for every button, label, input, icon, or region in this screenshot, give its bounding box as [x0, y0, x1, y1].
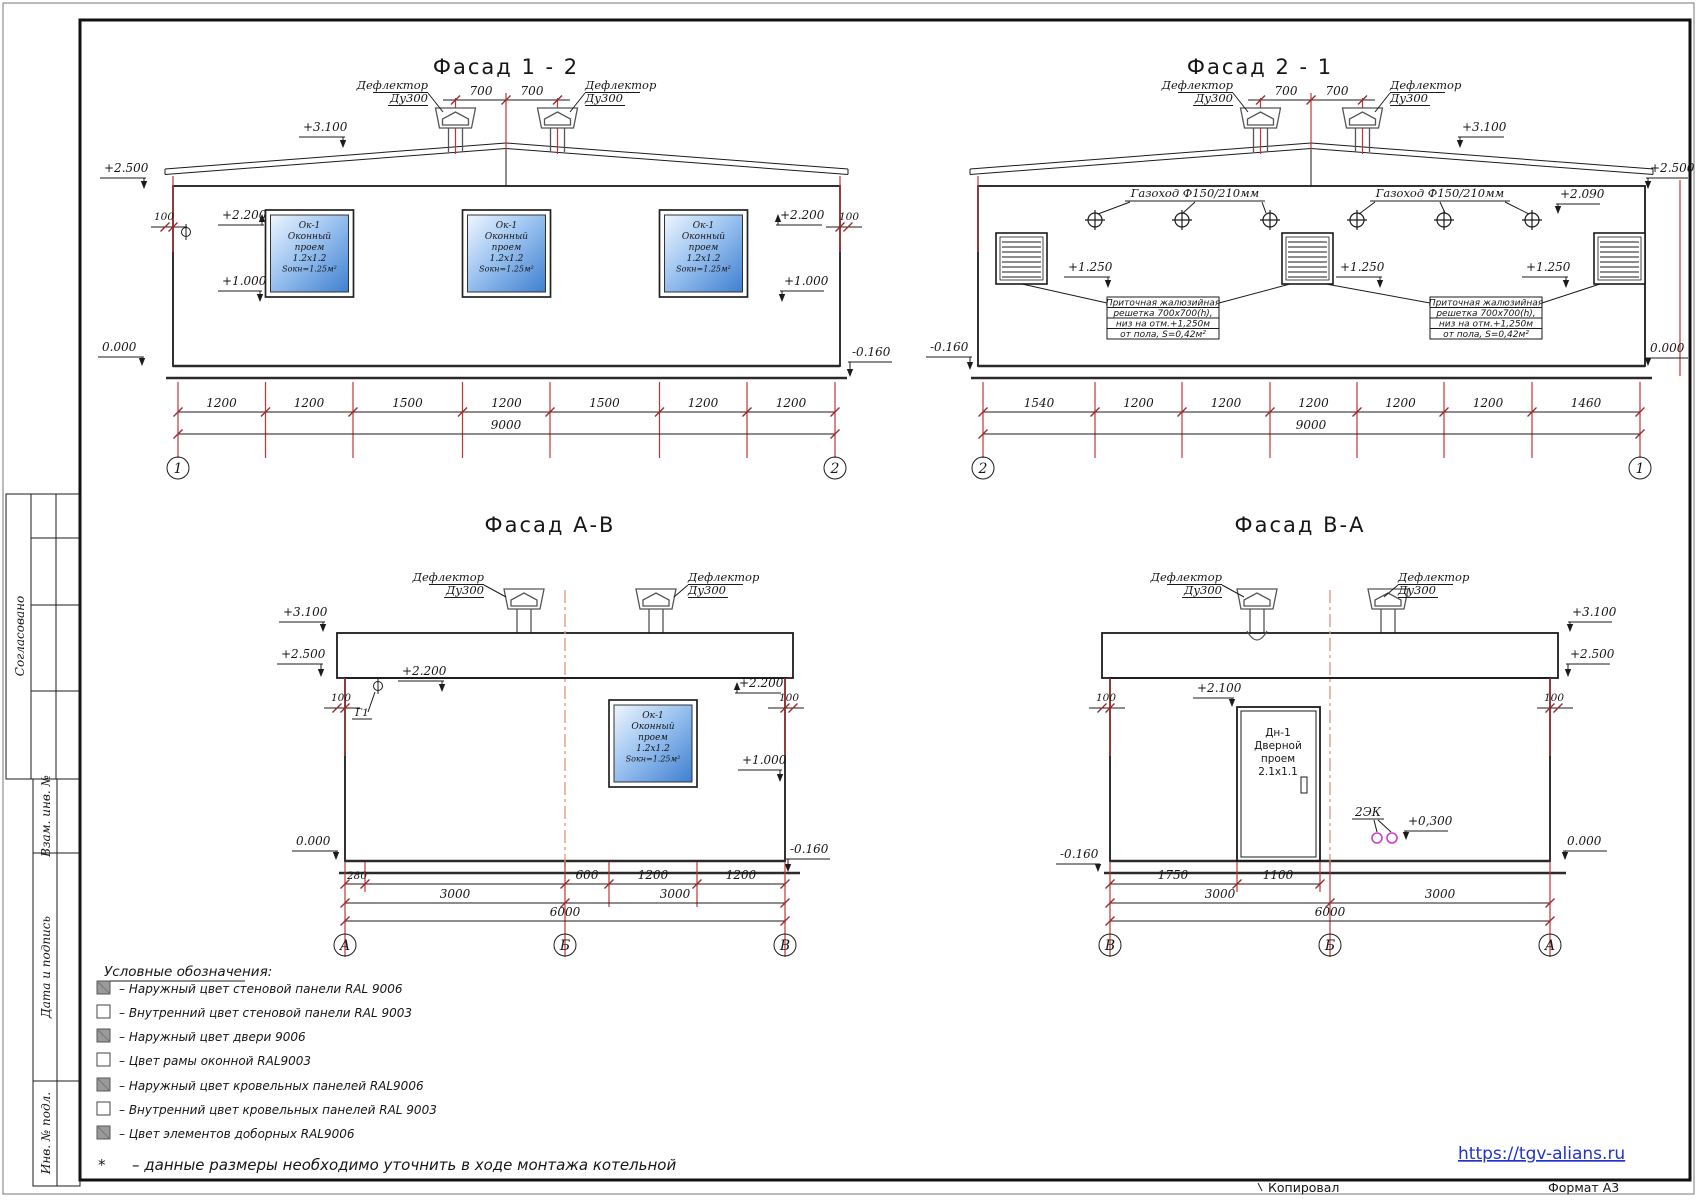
dim-value: 1200 [206, 396, 237, 410]
svg-text:– Внутренний цвет стеновой пан: – Внутренний цвет стеновой панели RAL 90… [119, 1006, 412, 1020]
svg-text:Ду300: Ду300 [1397, 583, 1436, 597]
footnote-text: – данные размеры необходимо уточнить в х… [132, 1156, 676, 1174]
svg-text:Дефлектор: Дефлектор [356, 78, 429, 92]
dim-total: 9000 [1296, 418, 1327, 432]
format-label: Формат А3 [1548, 1180, 1619, 1195]
dim-value: 280 [346, 870, 367, 882]
dim-100: 100 [826, 211, 862, 232]
svg-text:Ок-1: Ок-1 [693, 221, 715, 231]
deflector-label: Дефлектор Ду300 [412, 570, 506, 598]
elevation-mark: +2.200 [775, 208, 825, 225]
svg-text:+2.500: +2.500 [1650, 161, 1695, 175]
svg-text:низ на отм.+1,250м: низ на отм.+1,250м [1439, 320, 1533, 330]
svg-text:1.2х1.2: 1.2х1.2 [687, 254, 721, 264]
cable-entry-2ek: 2ЭК [1352, 805, 1397, 843]
svg-text:Дефлектор: Дефлектор [1150, 570, 1223, 584]
elevation-mark: -0.160 [926, 340, 973, 370]
dim-value: 1100 [1263, 868, 1294, 882]
legend: Условные обозначения: – Наружный цвет ст… [97, 964, 676, 1174]
elevation-mark: -0.160 [785, 842, 830, 872]
svg-text:0.000: 0.000 [102, 340, 137, 354]
svg-text:100: 100 [331, 692, 351, 704]
swatch-white [97, 1053, 110, 1066]
svg-text:-0.160: -0.160 [1060, 847, 1099, 861]
svg-text:Оконный: Оконный [682, 232, 725, 242]
svg-text:+0,300: +0,300 [1408, 814, 1453, 828]
svg-text:Sокн=1.25м²: Sокн=1.25м² [676, 265, 731, 274]
svg-text:0.000: 0.000 [1650, 341, 1685, 355]
stamp-vzam-label: Взам. инв. № [39, 775, 53, 858]
agreed-label: Согласовано [13, 596, 27, 676]
svg-text:2: 2 [830, 461, 840, 477]
svg-text:+1.000: +1.000 [742, 753, 787, 767]
svg-text:+3.100: +3.100 [1462, 120, 1507, 134]
louver-grille [1594, 233, 1645, 284]
legend-item: – Наружный цвет кровельных панелей RAL90… [97, 1078, 424, 1093]
svg-text:+1.250: +1.250 [1068, 260, 1113, 274]
svg-text:Дефлектор: Дефлектор [1161, 78, 1234, 92]
dimension-rows: 1200 1200 1500 1200 1500 1200 1200 9000 [174, 382, 840, 458]
svg-text:+1.000: +1.000 [222, 274, 267, 288]
dim-700: 700 [470, 84, 493, 98]
svg-text:низ на отм.+1,250м: низ на отм.+1,250м [1116, 320, 1210, 330]
dim-value: 1200 [294, 396, 325, 410]
deflector-label: Дефлектор Ду300 [1161, 78, 1248, 112]
dim-value: 1540 [1024, 396, 1055, 410]
elevation-mark: +1.000 [218, 274, 267, 302]
svg-text:Дефлектор: Дефлектор [1389, 78, 1462, 92]
drawing-canvas: Согласовано Взам. инв. № Дата и подпись … [0, 0, 1697, 1200]
svg-text:Б: Б [1324, 938, 1335, 954]
title-block-sidebar: Согласовано Взам. инв. № Дата и подпись … [6, 494, 80, 1186]
facade-a-b-title: Фасад А-В [485, 513, 616, 537]
facade-1-2: Фасад 1 - 2 700 700 Дефлектор Ду300 Дефл… [98, 55, 892, 479]
elevation-mark: +2.200 [218, 208, 267, 225]
gazohod-label: Газоход Ф150/210мм [1098, 186, 1266, 214]
svg-text:– Наружный цвет двери 9006: – Наружный цвет двери 9006 [119, 1030, 306, 1044]
dim-value: 3000 [660, 887, 691, 901]
dim-value: 1460 [1571, 396, 1602, 410]
dim-100: 100 [1089, 692, 1125, 713]
svg-text:Ду300: Ду300 [389, 91, 428, 105]
deflector-icon [636, 589, 676, 633]
dim-total: 9000 [491, 418, 522, 432]
gas-vent-icon [1260, 210, 1280, 230]
elevation-mark: +1.000 [738, 753, 787, 782]
gas-vent-icon [1347, 210, 1367, 230]
dim-700: 700 [1326, 84, 1349, 98]
facade-a-b: Фасад А-В Дефлектор Ду300 Дефлектор Ду30… [277, 513, 830, 957]
svg-text:+2.100: +2.100 [1197, 681, 1242, 695]
svg-text:+2.500: +2.500 [104, 161, 149, 175]
svg-text:– Наружный цвет кровельных пан: – Наружный цвет кровельных панелей RAL90… [119, 1079, 424, 1093]
louver-grille [996, 233, 1047, 284]
svg-text:В: В [1104, 938, 1115, 954]
svg-text:Дефлектор: Дефлектор [1397, 570, 1470, 584]
svg-text:Дефлектор: Дефлектор [584, 78, 657, 92]
svg-text:+2.500: +2.500 [1570, 647, 1615, 661]
elevation-mark: +2.090 [1555, 187, 1605, 214]
svg-text:+2.500: +2.500 [281, 647, 326, 661]
stamp-date-label: Дата и подпись [39, 916, 53, 1019]
legend-item: – Наружный цвет двери 9006 [97, 1029, 306, 1044]
dim-100: 100 [768, 692, 804, 713]
facade-1-2-title: Фасад 1 - 2 [433, 55, 579, 79]
elevation-mark: +3.100 [279, 605, 328, 632]
dim-total: 6000 [1315, 905, 1346, 919]
elevation-mark: +2.500 [1565, 647, 1615, 677]
elevation-mark: +3.100 [299, 120, 348, 148]
elevation-mark: +2.200 [734, 676, 784, 693]
elevation-mark: 0.000 [98, 340, 145, 366]
dim-value: 1200 [1211, 396, 1242, 410]
site-link[interactable]: https://tgv-alians.ru [1458, 1144, 1625, 1164]
svg-text:Ду300: Ду300 [1194, 91, 1233, 105]
deflector-label: Дефлектор Ду300 [674, 570, 760, 598]
svg-text:Б: Б [559, 938, 570, 954]
stamp-inv-label: Инв. № подл. [39, 1092, 53, 1175]
elevation-mark: +1.250 [1336, 260, 1385, 288]
svg-text:+1.250: +1.250 [1526, 260, 1571, 274]
svg-text:1: 1 [174, 461, 183, 477]
svg-text:Дверной: Дверной [1254, 740, 1302, 752]
sheet-footer: https://tgv-alians.ru Копировал Формат А… [1258, 1144, 1625, 1195]
dim-value: 1200 [638, 868, 669, 882]
louver-grille [1282, 233, 1333, 284]
swatch-white [97, 1005, 110, 1018]
gas-vent-icon [1434, 210, 1454, 230]
svg-text:Ду300: Ду300 [687, 583, 726, 597]
elevation-mark: -0.160 [847, 345, 892, 377]
svg-text:Дн-1: Дн-1 [1265, 727, 1291, 739]
svg-text:Ок-1: Ок-1 [642, 711, 664, 721]
svg-text:2.1х1.1: 2.1х1.1 [1258, 766, 1298, 778]
deflector-label: Дефлектор Ду300 [356, 78, 443, 112]
svg-text:Ду300: Ду300 [1389, 91, 1428, 105]
svg-text:100: 100 [154, 211, 174, 223]
svg-text:Sокн=1.25м²: Sокн=1.25м² [626, 755, 681, 764]
svg-text:+2.200: +2.200 [739, 676, 784, 690]
elevation-mark: 0.000 [1645, 341, 1688, 366]
svg-text:0.000: 0.000 [296, 834, 331, 848]
svg-text:Ок-1: Ок-1 [496, 221, 518, 231]
legend-item: – Цвет элементов доборных RAL9006 [97, 1126, 355, 1141]
svg-text:1.2х1.2: 1.2х1.2 [636, 744, 670, 754]
dim-value: 1200 [776, 396, 807, 410]
dim-700: 700 [1275, 84, 1298, 98]
elevation-mark: +1.250 [1064, 260, 1113, 288]
deflector-icon [1237, 589, 1277, 633]
svg-text:100: 100 [1096, 692, 1116, 704]
dim-100: 100 [1537, 692, 1573, 713]
svg-text:Оконный: Оконный [288, 232, 331, 242]
svg-text:Ок-1: Ок-1 [299, 221, 321, 231]
svg-text:Ду300: Ду300 [584, 91, 623, 105]
dim-value: 3000 [440, 887, 471, 901]
elevation-mark: +2.500 [1645, 161, 1695, 189]
svg-text:Sокн=1.25м²: Sокн=1.25м² [282, 265, 337, 274]
svg-text:от пола, S=0,42м²: от пола, S=0,42м² [1120, 330, 1206, 340]
svg-text:Дефлектор: Дефлектор [412, 570, 485, 584]
elevation-mark: 0.000 [1562, 834, 1607, 860]
svg-text:+2.090: +2.090 [1560, 187, 1605, 201]
svg-text:А: А [1544, 938, 1556, 954]
drawing-sheet: Согласовано Взам. инв. № Дата и подпись … [0, 0, 1697, 1200]
elevation-mark: -0.160 [1056, 847, 1101, 872]
svg-text:Оконный: Оконный [485, 232, 528, 242]
svg-text:+2.200: +2.200 [780, 208, 825, 222]
dim-value: 3000 [1425, 887, 1456, 901]
svg-text:1: 1 [1636, 461, 1645, 477]
dim-value: 1200 [688, 396, 719, 410]
intake-grille-note: Приточная жалюзийная решетка 700х700(h),… [1326, 284, 1600, 340]
door-dn1: Дн-1 Дверной проем 2.1х1.1 [1237, 707, 1320, 861]
elevation-mark: +2.100 [1193, 681, 1242, 707]
svg-text:2ЭК: 2ЭК [1354, 805, 1382, 819]
svg-text:решетка 700х700(h),: решетка 700х700(h), [1112, 309, 1212, 319]
svg-text:0.000: 0.000 [1567, 834, 1602, 848]
dim-value: 1200 [1123, 396, 1154, 410]
svg-text:В: В [779, 938, 790, 954]
svg-text:Приточная жалюзийная: Приточная жалюзийная [1106, 299, 1221, 309]
axis-marker: А Б В [334, 934, 796, 956]
facade-b-a-title: Фасад В-А [1235, 513, 1366, 537]
svg-text:100: 100 [1544, 692, 1564, 704]
elevation-mark: +0,300 [1403, 814, 1453, 840]
svg-text:-0.160: -0.160 [930, 340, 969, 354]
dim-value: 1500 [392, 396, 423, 410]
svg-text:100: 100 [839, 211, 859, 223]
dim-700: 700 [521, 84, 544, 98]
svg-text:проем: проем [689, 243, 719, 253]
svg-text:100: 100 [779, 692, 799, 704]
svg-text:проем: проем [638, 733, 668, 743]
svg-text:проем: проем [295, 243, 325, 253]
svg-text:Дефлектор: Дефлектор [687, 570, 760, 584]
svg-text:-0.160: -0.160 [852, 345, 891, 359]
svg-text:– Цвет рамы оконной RAL9003: – Цвет рамы оконной RAL9003 [119, 1054, 311, 1068]
svg-text:Газоход Ф150/210мм: Газоход Ф150/210мм [1130, 186, 1259, 200]
dim-value: 1200 [1298, 396, 1329, 410]
dim-value: 1200 [491, 396, 522, 410]
dim-value: 1200 [1473, 396, 1504, 410]
svg-text:1.2х1.2: 1.2х1.2 [293, 254, 327, 264]
svg-text:Ду300: Ду300 [1183, 583, 1222, 597]
svg-text:от пола, S=0,42м²: от пола, S=0,42м² [1443, 330, 1529, 340]
svg-text:– Цвет элементов доборных RAL9: – Цвет элементов доборных RAL9006 [119, 1127, 355, 1141]
door-handle [1301, 777, 1307, 793]
facade-2-1-title: Фасад 2 - 1 [1187, 55, 1333, 79]
svg-text:– Наружный цвет стеновой панел: – Наружный цвет стеновой панели RAL 9006 [119, 982, 403, 996]
svg-text:– Внутренний цвет кровельных п: – Внутренний цвет кровельных панелей RAL… [119, 1103, 437, 1117]
svg-text:+2.200: +2.200 [402, 664, 447, 678]
gas-inlet-g1: Г1 [352, 678, 383, 719]
swatch-white [97, 1102, 110, 1115]
elevation-mark: +3.100 [1567, 605, 1617, 632]
svg-text:решетка 700х700(h),: решетка 700х700(h), [1435, 309, 1535, 319]
gas-vent-icon [1522, 210, 1542, 230]
legend-item: – Внутренний цвет кровельных панелей RAL… [97, 1102, 437, 1117]
elevation-mark: 0.000 [292, 834, 339, 860]
legend-item: – Внутренний цвет стеновой панели RAL 90… [97, 1005, 412, 1020]
elevation-mark: +3.100 [1457, 120, 1507, 148]
svg-text:-0.160: -0.160 [790, 842, 829, 856]
dim-total: 6000 [550, 905, 581, 919]
facade-b-a: Фасад В-А Дефлектор Ду300 Дефлектор Ду30… [1056, 513, 1617, 957]
dim-value: 3000 [1205, 887, 1236, 901]
gazohod-label: Газоход Ф150/210мм [1359, 186, 1529, 214]
svg-text:+3.100: +3.100 [303, 120, 348, 134]
axis-marker: 2 1 [972, 457, 1651, 479]
axis-marker: В Б А [1099, 934, 1561, 956]
legend-title: Условные обозначения: [104, 964, 272, 980]
deflector-icon [504, 589, 544, 633]
svg-text:2: 2 [978, 461, 988, 477]
dim-value: 1200 [1385, 396, 1416, 410]
svg-text:1.2х1.2: 1.2х1.2 [490, 254, 524, 264]
elevation-mark: +1.000 [779, 274, 829, 302]
svg-text:Оконный: Оконный [631, 722, 674, 732]
copied-label: Копировал [1268, 1180, 1339, 1195]
facade-2-1: Фасад 2 - 1 700 700 Дефлектор Ду300 Дефл… [926, 55, 1695, 479]
intake-grille-note: Приточная жалюзийная решетка 700х700(h),… [1022, 284, 1290, 340]
gas-inlet-icon [182, 224, 191, 240]
elevation-mark: +2.500 [277, 647, 326, 677]
footnote-star: * [98, 1156, 106, 1174]
svg-text:+3.100: +3.100 [283, 605, 328, 619]
svg-text:проем: проем [1261, 753, 1295, 765]
gas-vent-icon [1172, 210, 1192, 230]
svg-text:Ду300: Ду300 [445, 583, 484, 597]
dim-value: 1200 [726, 868, 757, 882]
svg-text:+3.100: +3.100 [1572, 605, 1617, 619]
dim-value: 1750 [1158, 868, 1189, 882]
legend-item: – Цвет рамы оконной RAL9003 [97, 1053, 311, 1068]
dimension-rows: 1540 1200 1200 1200 1200 1200 1460 9000 [979, 382, 1645, 458]
svg-text:Газоход Ф150/210мм: Газоход Ф150/210мм [1375, 186, 1504, 200]
dim-value: 600 [576, 868, 599, 882]
dim-value: 1500 [589, 396, 620, 410]
elevation-mark: +2.500 [100, 161, 149, 189]
elevation-mark: +1.250 [1522, 260, 1571, 288]
deflector-label: Дефлектор Ду300 [570, 78, 657, 112]
svg-text:А: А [339, 938, 351, 954]
deflector-label: Дефлектор Ду300 [1375, 78, 1462, 112]
svg-text:+1.250: +1.250 [1340, 260, 1385, 274]
svg-text:Приточная жалюзийная: Приточная жалюзийная [1429, 299, 1544, 309]
svg-text:Sокн=1.25м²: Sокн=1.25м² [479, 265, 534, 274]
dim-100: 100 [151, 211, 187, 232]
svg-text:+1.000: +1.000 [784, 274, 829, 288]
deflector-label: Дефлектор Ду300 [1150, 570, 1244, 598]
svg-text:проем: проем [492, 243, 522, 253]
svg-text:Г1: Г1 [354, 707, 369, 719]
axis-marker: 1 2 [167, 457, 846, 479]
legend-item: – Наружный цвет стеновой панели RAL 9006 [97, 981, 403, 996]
